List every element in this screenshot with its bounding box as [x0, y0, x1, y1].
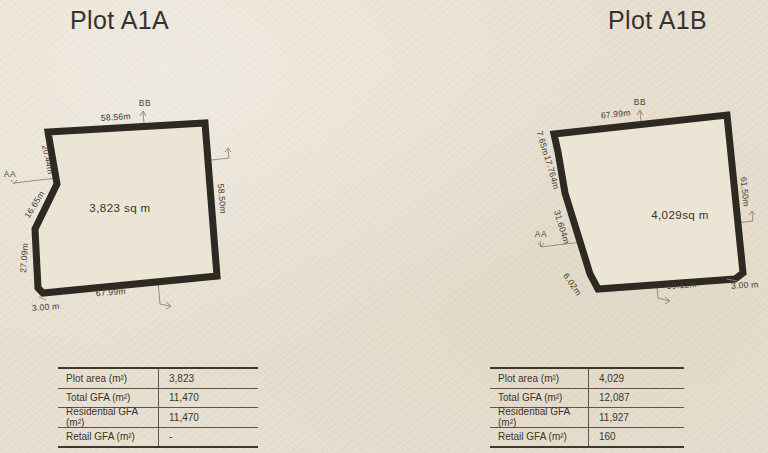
row-value: 3,823 — [159, 369, 258, 388]
plot-a1b-outline — [554, 115, 743, 289]
dim-left-upper: 7.65m — [535, 130, 551, 157]
dim-top: 67.99m — [600, 107, 631, 120]
corner-tick — [39, 297, 46, 300]
plot-a1b-title: Plot A1B — [608, 6, 707, 35]
plot-a1a-title: Plot A1A — [70, 6, 169, 35]
dim-right: 58.50m — [216, 183, 229, 214]
row-label: Retail GFA (m²) — [58, 428, 159, 447]
row-label: Total GFA (m²) — [58, 389, 159, 408]
row-value: 12,087 — [589, 389, 684, 408]
row-value: - — [159, 428, 258, 447]
table-row: Plot area (m²) 3,823 — [58, 369, 258, 389]
row-label: Total GFA (m²) — [490, 389, 589, 408]
row-value: 11,470 — [159, 389, 258, 408]
aa-label: AA — [4, 169, 16, 179]
plot-a1b-diagram: BB AA 67.99m 7.65m 17.764m 31.604m 6.02m… — [480, 88, 768, 320]
page: Plot A1A Plot A1B BB AA 58.56m 20.44m 16… — [0, 0, 768, 453]
plot-a1b-area: 4,029sq m — [651, 208, 709, 221]
dim-left-lower: 27.09m — [18, 243, 30, 273]
table-row: Total GFA (m²) 11,470 — [58, 389, 258, 409]
table-row: Total GFA (m²) 12,087 — [490, 389, 684, 409]
row-label: Retail GFA (m²) — [490, 428, 589, 447]
row-label: Plot area (m²) — [490, 369, 589, 388]
table-row: Residential GFA (m²) 11,927 — [490, 408, 684, 428]
row-value: 11,927 — [589, 408, 684, 427]
table-row: Residential GFA (m²) 11,470 — [58, 408, 258, 428]
table-row: Retail GFA (m²) - — [58, 428, 258, 447]
plot-a1a-area: 3,823 sq m — [89, 201, 150, 214]
dim-bottom-left: 6.02m — [561, 271, 583, 297]
plot-a1a-table: Plot area (m²) 3,823 Total GFA (m²) 11,4… — [58, 367, 258, 448]
dim-top: 58.56m — [101, 111, 131, 123]
row-label: Residential GFA (m²) — [490, 408, 589, 427]
row-value: 4,029 — [589, 369, 684, 388]
row-label: Plot area (m²) — [58, 369, 159, 388]
dim-right: 61.50m — [738, 176, 751, 207]
dim-corner: 3.00 m — [32, 301, 60, 313]
dim-bottom: 59.12m — [667, 279, 697, 291]
plot-a1a-diagram: BB AA 58.56m 20.44m 16.65m 27.09m 58.50m… — [0, 88, 270, 320]
table-row: Retail GFA (m²) 160 — [490, 428, 684, 447]
table-row: Plot area (m²) 4,029 — [490, 369, 684, 389]
dim-bottom: 67.99m — [95, 286, 126, 298]
row-value: 160 — [589, 428, 684, 447]
row-label: Residential GFA (m²) — [58, 408, 159, 427]
plot-a1b-table: Plot area (m²) 4,029 Total GFA (m²) 12,0… — [490, 367, 684, 448]
dim-corner: 3.00 m — [731, 279, 759, 290]
bb-label: BB — [139, 98, 151, 108]
bb-label: BB — [634, 97, 646, 107]
row-value: 11,470 — [159, 408, 258, 427]
aa-label: AA — [535, 229, 547, 239]
